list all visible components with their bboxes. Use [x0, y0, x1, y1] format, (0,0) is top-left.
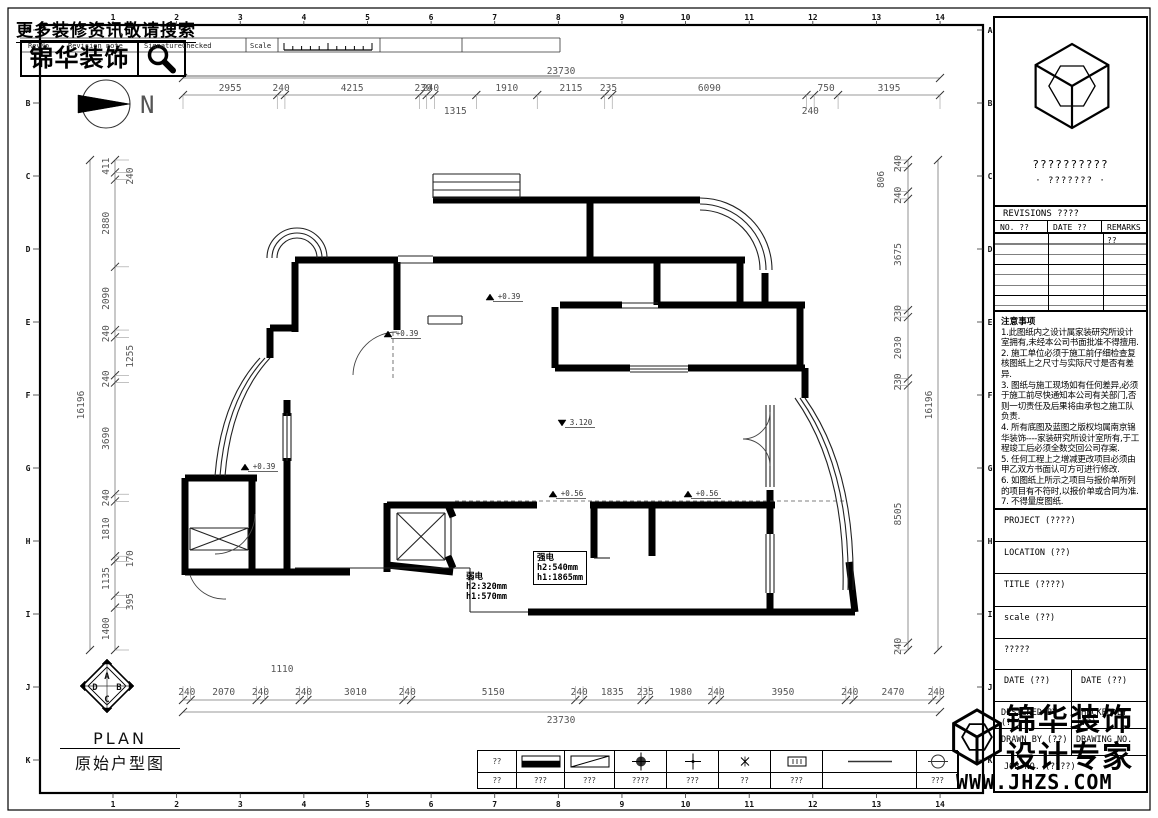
- svg-text:1810: 1810: [101, 517, 112, 540]
- brand-lockup: 锦华装饰 设计专家 WWW.JHZS.COM: [948, 692, 1156, 796]
- svg-text:240: 240: [893, 638, 904, 655]
- svg-text:3.120: 3.120: [570, 418, 593, 427]
- svg-text:1255: 1255: [125, 345, 136, 368]
- legend-symbol-cell: [917, 751, 959, 772]
- svg-text:5150: 5150: [482, 687, 505, 698]
- svg-text:+0.39: +0.39: [498, 292, 521, 301]
- svg-text:E: E: [988, 318, 993, 327]
- svg-text:1: 1: [111, 800, 116, 809]
- svg-text:23730: 23730: [547, 715, 576, 726]
- svg-text:1980: 1980: [669, 687, 692, 698]
- svg-text:13: 13: [872, 800, 882, 809]
- weak-electric-h1: h1:570mm: [466, 592, 507, 602]
- svg-text:806: 806: [876, 171, 887, 188]
- svg-text:240: 240: [125, 167, 136, 184]
- note-item: 6. 如图纸上所示之项目与报价单所列的项目有不符时,以报价单或合同为准.: [1001, 476, 1141, 497]
- svg-text:2880: 2880: [101, 212, 112, 235]
- svg-text:12: 12: [808, 800, 818, 809]
- svg-text:230: 230: [893, 373, 904, 390]
- svg-text:2090: 2090: [101, 287, 112, 310]
- legend-label-cell: ???: [771, 772, 823, 789]
- svg-text:9: 9: [620, 800, 625, 809]
- legend-label-cell: ???: [517, 772, 565, 789]
- svg-text:F: F: [988, 391, 993, 400]
- meter-legend-icon: [774, 752, 820, 771]
- revisions-header-row: NO. ?? DATE ?? REMARKS ??: [995, 221, 1146, 234]
- svg-text:2070: 2070: [212, 687, 235, 698]
- svg-text:240: 240: [802, 106, 819, 117]
- legend-symbol-cell: [615, 751, 667, 772]
- svg-text:16196: 16196: [76, 390, 87, 419]
- svg-text:8: 8: [556, 13, 561, 22]
- svg-text:+0.56: +0.56: [696, 489, 719, 498]
- level-annotations: +0.39+0.39+0.39+0.56+0.563.120: [241, 292, 721, 499]
- svg-text:1110: 1110: [271, 664, 294, 675]
- svg-text:3675: 3675: [893, 243, 904, 266]
- svg-text:+0.56: +0.56: [561, 489, 584, 498]
- legend-symbol-cell: ??: [478, 751, 517, 772]
- svg-text:3: 3: [238, 800, 243, 809]
- svg-text:240: 240: [893, 186, 904, 203]
- svg-text:6090: 6090: [698, 83, 721, 94]
- svg-text:8: 8: [556, 800, 561, 809]
- circle-minus-legend-icon: [920, 752, 956, 771]
- svg-text:5: 5: [365, 800, 370, 809]
- svg-text:H: H: [988, 537, 993, 546]
- legend-label-cell: ???: [667, 772, 719, 789]
- weak-electric-title: 弱电: [466, 572, 507, 582]
- revisions-title: REVISIONS ????: [995, 207, 1146, 221]
- plan-key-diamond: ABCD: [80, 659, 134, 713]
- star-legend-icon: [722, 752, 768, 771]
- svg-text:7: 7: [492, 800, 497, 809]
- svg-text:I: I: [26, 610, 31, 619]
- svg-text:2955: 2955: [219, 83, 242, 94]
- field-project: PROJECT (????): [995, 510, 1146, 542]
- svg-text:B: B: [26, 99, 31, 108]
- note-item: 1.此图纸内之设计属家装研究所设计室拥有,未经本公司书面批准不得擅用.: [1001, 328, 1141, 349]
- svg-text:G: G: [988, 464, 993, 473]
- floor-plan-dashed-lines: [393, 332, 845, 501]
- cad-floorplan-sheet: 11223344556677889910101111121213131414AA…: [0, 0, 1158, 818]
- target-legend-icon: [618, 752, 664, 771]
- svg-text:6: 6: [429, 13, 434, 22]
- search-hint-text: 更多装修资讯敬请搜索: [16, 16, 196, 43]
- company-sub-placeholder: · ??????? ·: [995, 176, 1146, 186]
- svg-text:1400: 1400: [101, 617, 112, 640]
- legend-symbol-cell: [517, 751, 565, 772]
- svg-text:D: D: [92, 683, 98, 693]
- svg-text:16196: 16196: [924, 390, 935, 419]
- floor-plan-thin-lines: [190, 174, 774, 612]
- company-cube-logo-icon: [995, 18, 1150, 153]
- svg-text:1835: 1835: [601, 687, 624, 698]
- revisions-col-no: NO. ??: [995, 221, 1048, 232]
- plan-title-en: PLAN: [60, 729, 180, 749]
- strip-revision-note-label: Revision note: [68, 42, 123, 50]
- svg-text:+0.39: +0.39: [253, 462, 276, 471]
- svg-text:411: 411: [101, 157, 112, 174]
- legend-label-cell: ???: [917, 772, 959, 789]
- svg-text:1135: 1135: [101, 567, 112, 590]
- legend-symbol-cell: [565, 751, 615, 772]
- svg-text:10: 10: [681, 13, 691, 22]
- svg-text:7: 7: [492, 13, 497, 22]
- svg-text:J: J: [26, 683, 31, 692]
- title-block: ?????????? · ??????? · REVISIONS ???? NO…: [993, 16, 1148, 793]
- bar-legend-icon: [520, 752, 562, 771]
- svg-text:240: 240: [399, 687, 416, 698]
- svg-text:9: 9: [620, 13, 625, 22]
- svg-text:13: 13: [872, 13, 882, 22]
- note-item: 2. 施工单位必须于施工前仔细检查复核图纸上之尺寸与实际尺寸是否有差异.: [1001, 349, 1141, 381]
- title-block-company-area: ?????????? · ??????? ·: [995, 18, 1146, 207]
- dimension-chains: 2955240421523024013151910211523560902407…: [76, 66, 945, 726]
- svg-text:240: 240: [893, 155, 904, 172]
- svg-text:240: 240: [928, 687, 945, 698]
- svg-text:2: 2: [174, 800, 179, 809]
- svg-text:K: K: [26, 756, 31, 765]
- svg-text:G: G: [26, 464, 31, 473]
- svg-text:E: E: [26, 318, 31, 327]
- svg-text:235: 235: [637, 687, 654, 698]
- strong-electric-h1: h1:1865mm: [537, 573, 583, 583]
- svg-text:240: 240: [273, 83, 290, 94]
- revisions-col-date: DATE ??: [1048, 221, 1102, 232]
- svg-text:23730: 23730: [547, 66, 576, 77]
- svg-text:H: H: [26, 537, 31, 546]
- svg-text:4: 4: [301, 13, 306, 22]
- svg-text:240: 240: [571, 687, 588, 698]
- rect-diag-legend-icon: [568, 752, 612, 771]
- svg-text:10: 10: [681, 800, 691, 809]
- revisions-empty-rows: [995, 234, 1146, 312]
- svg-text:3195: 3195: [878, 83, 901, 94]
- strip-scale-label: Scale: [250, 42, 271, 50]
- field-title: TITLE (????): [995, 574, 1146, 607]
- notes-title: 注意事项: [1001, 317, 1141, 328]
- field-location: LOCATION (??): [995, 542, 1146, 574]
- strong-electric-annotation: 强电 h2:540mm h1:1865mm: [533, 551, 587, 585]
- svg-text:14: 14: [935, 13, 945, 22]
- strong-electric-title: 强电: [537, 553, 583, 563]
- strip-checked-label: Checked: [182, 42, 212, 50]
- notes-section: 注意事项 1.此图纸内之设计属家装研究所设计室拥有,未经本公司书面批准不得擅用.…: [995, 312, 1146, 510]
- svg-text:I: I: [988, 610, 993, 619]
- svg-text:2030: 2030: [893, 336, 904, 359]
- legend-symbol-cell: [667, 751, 719, 772]
- svg-text:3690: 3690: [101, 427, 112, 450]
- svg-text:3010: 3010: [344, 687, 367, 698]
- svg-text:N: N: [140, 91, 154, 119]
- note-item: 4. 所有底图及蓝图之版权均属南京锦华装饰----家装研究所设计室所有,于工程竣…: [1001, 423, 1141, 455]
- svg-text:+0.39: +0.39: [396, 329, 419, 338]
- svg-text:240: 240: [422, 83, 439, 94]
- svg-text:5: 5: [365, 13, 370, 22]
- dash-legend-icon: [826, 752, 914, 771]
- svg-text:240: 240: [841, 687, 858, 698]
- field-scale: scale (??): [995, 607, 1146, 639]
- legend-symbol-cell: [719, 751, 771, 772]
- svg-text:240: 240: [295, 687, 312, 698]
- svg-text:235: 235: [600, 83, 617, 94]
- note-item: 5. 任何工程上之增减更改项目必须由甲乙双方书面认可方可进行修改.: [1001, 455, 1141, 476]
- svg-text:C: C: [988, 172, 993, 181]
- svg-text:B: B: [116, 683, 122, 693]
- svg-text:11: 11: [744, 800, 754, 809]
- notes-list: 1.此图纸内之设计属家装研究所设计室拥有,未经本公司书面批准不得擅用.2. 施工…: [1001, 328, 1141, 508]
- strong-electric-h2: h2:540mm: [537, 563, 583, 573]
- svg-text:2115: 2115: [560, 83, 583, 94]
- svg-text:4215: 4215: [341, 83, 364, 94]
- legend-symbol-cell: [771, 751, 823, 772]
- legend-label-cell: ???: [565, 772, 615, 789]
- svg-text:1910: 1910: [495, 83, 518, 94]
- strip-signature-label: Signature: [144, 42, 182, 50]
- legend-label-cell: ??: [478, 772, 517, 789]
- svg-text:J: J: [988, 683, 993, 692]
- svg-text:6: 6: [429, 800, 434, 809]
- svg-text:B: B: [988, 99, 993, 108]
- legend-label-cell: ????: [615, 772, 667, 789]
- legend-label-cell: ??: [719, 772, 771, 789]
- svg-text:170: 170: [125, 550, 136, 567]
- brand-website: WWW.JHZS.COM: [956, 770, 1113, 794]
- svg-text:A: A: [988, 26, 993, 35]
- svg-text:240: 240: [178, 687, 195, 698]
- svg-text:395: 395: [125, 593, 136, 610]
- north-compass: N: [78, 80, 154, 128]
- svg-text:F: F: [26, 391, 31, 400]
- weak-electric-h2: h2:320mm: [466, 582, 507, 592]
- svg-text:240: 240: [707, 687, 724, 698]
- svg-text:3950: 3950: [771, 687, 794, 698]
- svg-text:1315: 1315: [444, 106, 467, 117]
- svg-text:8505: 8505: [893, 503, 904, 526]
- note-item: 7. 不得量度图纸.: [1001, 497, 1141, 508]
- svg-text:4: 4: [301, 800, 306, 809]
- svg-text:14: 14: [935, 800, 945, 809]
- legend-symbol-cell: [823, 751, 917, 772]
- svg-text:D: D: [988, 245, 993, 254]
- legend-label-cell: [823, 772, 917, 789]
- svg-text:A: A: [104, 672, 110, 682]
- svg-text:3: 3: [238, 13, 243, 22]
- svg-text:240: 240: [101, 489, 112, 506]
- svg-text:12: 12: [808, 13, 818, 22]
- svg-text:750: 750: [818, 83, 835, 94]
- legend-strip: ?????????????????????????: [477, 750, 958, 789]
- svg-text:240: 240: [252, 687, 269, 698]
- svg-text:D: D: [26, 245, 31, 254]
- svg-text:240: 240: [101, 370, 112, 387]
- company-name-placeholder: ??????????: [995, 158, 1146, 171]
- svg-text:240: 240: [101, 325, 112, 342]
- revisions-col-remarks: REMARKS ??: [1102, 221, 1146, 232]
- svg-text:C: C: [104, 695, 109, 705]
- svg-text:C: C: [26, 172, 31, 181]
- plan-title-zh: 原始户型图: [60, 750, 180, 774]
- weak-electric-annotation: 弱电 h2:320mm h1:570mm: [466, 572, 507, 602]
- svg-text:11: 11: [744, 13, 754, 22]
- svg-text:230: 230: [893, 305, 904, 322]
- note-item: 3. 图纸与施工现场如有任何差异,必须于施工前尽快通知本公司有关部门,否则一切责…: [1001, 381, 1141, 423]
- cross-legend-icon: [670, 752, 716, 771]
- strip-revno-label: RevNo: [28, 42, 49, 50]
- svg-text:2470: 2470: [882, 687, 905, 698]
- floor-plan-walls: [185, 200, 855, 614]
- field-unknown: ?????: [995, 639, 1146, 670]
